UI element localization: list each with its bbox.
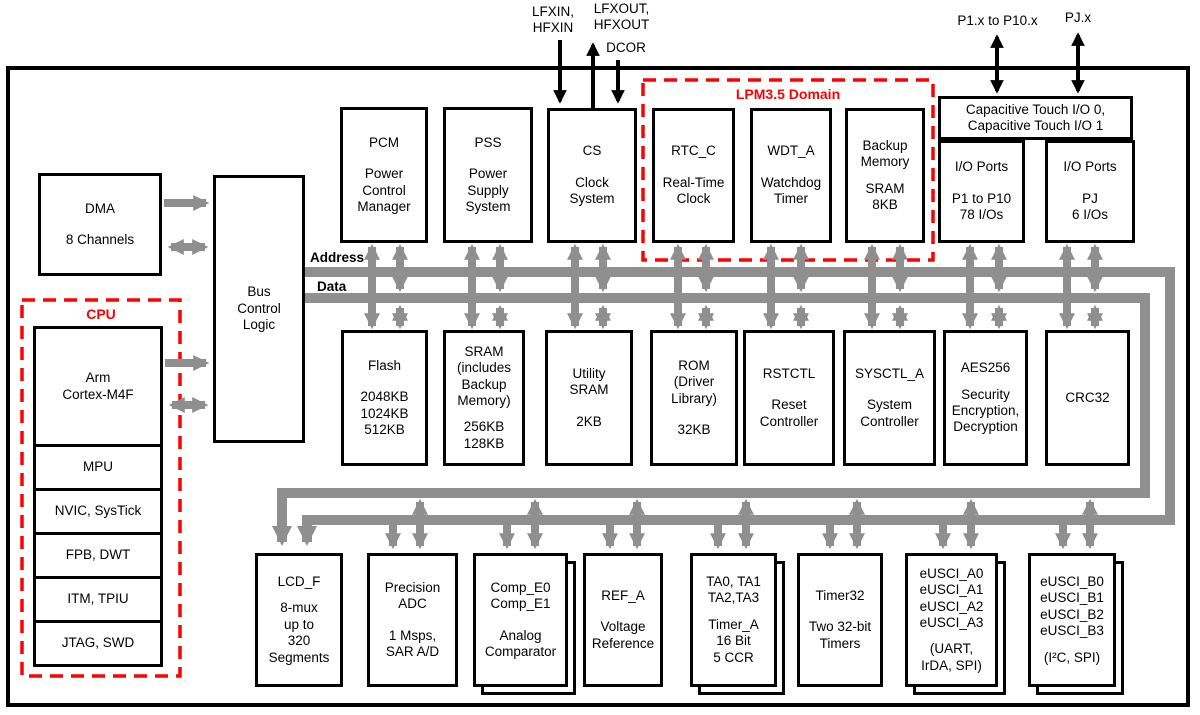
cpu-cell-mpu: MPU (36, 444, 160, 488)
block-adc-sub: 1 Msps, SAR A/D (386, 628, 439, 661)
cpu-cell-fpb-dwt: FPB, DWT (36, 532, 160, 576)
block-captouch: Capacitive Touch I/O 0, Capacitive Touch… (938, 96, 1133, 140)
block-ref-sub: Voltage Reference (592, 619, 654, 652)
block-rstctl-sub: Reset Controller (760, 397, 819, 430)
block-dma: DMA 8 Channels (38, 173, 162, 276)
block-utility-sram-sub: 2KB (576, 414, 602, 430)
block-eusci-a: eUSCI_A0 eUSCI_A1 eUSCI_A2 eUSCI_A3 (UAR… (905, 553, 998, 687)
block-rom-sub: 32KB (677, 422, 710, 438)
cpu-cell-jtag-swd: JTAG, SWD (36, 620, 160, 664)
block-rtc: RTC_C Real-Time Clock (652, 108, 735, 243)
block-ref-title: REF_A (601, 588, 645, 604)
cpu-cell-nvic-systick: NVIC, SysTick (36, 488, 160, 532)
block-rtc-sub: Real-Time Clock (663, 175, 725, 208)
block-flash-sub: 2048KB 1024KB 512KB (360, 389, 408, 438)
block-timer-a: TA0, TA1 TA2,TA3 Timer_A 16 Bit 5 CCR (690, 553, 777, 687)
block-crc32-title: CRC32 (1065, 390, 1109, 406)
block-eusci-b-sub: (I²C, SPI) (1044, 650, 1100, 666)
block-cpu-stack: Arm Cortex-M4F MPU NVIC, SysTick FPB, DW… (33, 326, 163, 667)
block-bus-control-logic: Bus Control Logic (213, 175, 305, 443)
block-rstctl-title: RSTCTL (763, 366, 816, 382)
block-sysctl-title: SYSCTL_A (855, 366, 924, 382)
block-cs-title: CS (583, 143, 602, 159)
block-rom: ROM (Driver Library) 32KB (650, 330, 738, 466)
block-aes256: AES256 Security Encryption, Decryption (943, 330, 1028, 466)
block-eusci-a-title: eUSCI_A0 eUSCI_A1 eUSCI_A2 eUSCI_A3 (920, 566, 984, 632)
block-dma-title: DMA (85, 201, 115, 217)
address-bus-label: Address (310, 250, 364, 265)
block-flash-title: Flash (368, 358, 401, 374)
block-timer32-sub: Two 32-bit Timers (809, 619, 871, 652)
block-pcm-sub: Power Control Manager (357, 166, 410, 215)
block-lcd: LCD_F 8-mux up to 320 Segments (255, 553, 343, 687)
block-backup-memory: Backup Memory SRAM 8KB (845, 108, 925, 243)
block-timer-a-title: TA0, TA1 TA2,TA3 (706, 574, 761, 607)
pin-label-lfxout-hfxout: LFXOUT, HFXOUT (574, 1, 669, 33)
block-comp-title: Comp_E0 Comp_E1 (490, 580, 550, 613)
block-wdt-sub: Watchdog Timer (761, 175, 821, 208)
block-ref: REF_A Voltage Reference (583, 553, 663, 687)
block-rtc-title: RTC_C (671, 143, 716, 159)
block-dma-sub: 8 Channels (66, 232, 134, 248)
block-io1-title: I/O Ports (955, 159, 1008, 175)
block-pss-sub: Power Supply System (465, 166, 510, 215)
block-sysctl: SYSCTL_A System Controller (843, 330, 936, 466)
block-flash: Flash 2048KB 1024KB 512KB (341, 330, 428, 466)
block-lcd-title: LCD_F (278, 574, 321, 590)
block-timer32: Timer32 Two 32-bit Timers (797, 553, 883, 687)
block-io-ports-p1-p10: I/O Ports P1 to P10 78 I/Os (938, 140, 1025, 243)
block-cs: CS Clock System (547, 108, 637, 243)
cpu-region-label: CPU (22, 306, 180, 322)
block-lcd-sub: 8-mux up to 320 Segments (269, 600, 330, 666)
block-pcm: PCM Power Control Manager (340, 107, 428, 243)
block-aes256-sub: Security Encryption, Decryption (952, 387, 1020, 436)
block-sram-sub: 256KB 128KB (464, 419, 505, 452)
cpu-cell-core: Arm Cortex-M4F (36, 329, 160, 444)
block-eusci-b-title: eUSCI_B0 eUSCI_B1 eUSCI_B2 eUSCI_B3 (1040, 574, 1104, 640)
block-comparator: Comp_E0 Comp_E1 Analog Comparator (473, 553, 568, 687)
block-eusci-b: eUSCI_B0 eUSCI_B1 eUSCI_B2 eUSCI_B3 (I²C… (1028, 553, 1116, 687)
block-eusci-a-sub: (UART, IrDA, SPI) (921, 641, 982, 674)
pin-label-pj: PJ.x (1048, 10, 1108, 26)
block-wdt: WDT_A Watchdog Timer (750, 108, 832, 243)
block-timer32-title: Timer32 (815, 588, 864, 604)
lpm-region-label: LPM3.5 Domain (643, 86, 933, 102)
block-comp-sub: Analog Comparator (485, 628, 556, 661)
block-precision-adc: Precision ADC 1 Msps, SAR A/D (367, 553, 458, 687)
block-crc32: CRC32 (1045, 330, 1130, 466)
block-cs-sub: Clock System (569, 175, 614, 208)
block-io2-title: I/O Ports (1063, 159, 1116, 175)
block-pcm-title: PCM (369, 135, 399, 151)
block-timer-a-sub: Timer_A 16 Bit 5 CCR (708, 617, 759, 666)
block-backup-memory-title: Backup Memory (861, 138, 910, 171)
block-rstctl: RSTCTL Reset Controller (743, 330, 835, 466)
data-bus-label: Data (317, 279, 346, 294)
block-pss-title: PSS (474, 135, 501, 151)
block-sysctl-sub: System Controller (860, 397, 919, 430)
block-sram: SRAM (includes Backup Memory) 256KB 128K… (443, 330, 525, 466)
block-aes256-title: AES256 (961, 360, 1011, 376)
block-adc-title: Precision ADC (385, 580, 441, 613)
block-captouch-title: Capacitive Touch I/O 0, Capacitive Touch… (966, 102, 1105, 135)
cpu-cell-itm-tpiu: ITM, TPIU (36, 576, 160, 620)
block-utility-sram-title: Utility SRAM (569, 366, 608, 399)
block-io2-sub: PJ 6 I/Os (1072, 191, 1108, 224)
block-utility-sram: Utility SRAM 2KB (545, 330, 633, 466)
block-io1-sub: P1 to P10 78 I/Os (952, 191, 1011, 224)
pin-label-p1-p10: P1.x to P10.x (930, 13, 1065, 29)
block-backup-memory-sub: SRAM 8KB (865, 181, 904, 214)
block-sram-title: SRAM (includes Backup Memory) (457, 344, 511, 410)
block-rom-title: ROM (Driver Library) (671, 358, 717, 407)
block-io-ports-pj: I/O Ports PJ 6 I/Os (1045, 140, 1135, 243)
block-pss: PSS Power Supply System (443, 107, 533, 243)
pin-label-dcor: DCOR (596, 40, 656, 56)
block-wdt-title: WDT_A (767, 143, 814, 159)
soc-block-diagram: DMA 8 Channels Bus Control Logic Arm Cor… (0, 0, 1200, 715)
block-bus-control-logic-title: Bus Control Logic (237, 284, 281, 333)
